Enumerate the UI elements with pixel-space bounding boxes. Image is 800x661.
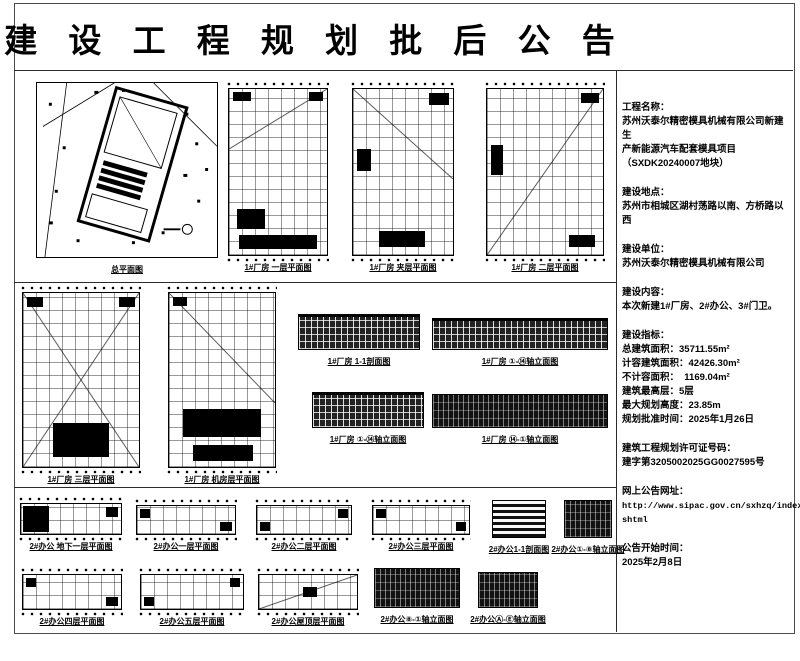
announcement-url-cont: shtml <box>622 513 790 527</box>
announcement-poster: { "title": "建 设 工 程 规 划 批 后 公 告", "color… <box>0 0 800 643</box>
elevation-graphic <box>374 568 460 608</box>
drawing-f1-mezzanine-plan: 1#厂房 夹层平面图 <box>352 88 454 256</box>
plan-core-block <box>23 506 49 532</box>
elevation-graphic <box>564 500 612 538</box>
floor-plan-graphic <box>228 88 328 256</box>
section-line: （SXDK20240007地块） <box>622 157 790 171</box>
floor-plan-graphic <box>486 88 604 256</box>
drawing-label: 2#办公①-⑧轴立面图 <box>551 544 624 555</box>
drawing-label: 总平面图 <box>111 264 143 275</box>
section-heading: 建筑工程规划许可证号码： <box>622 442 790 456</box>
plan-diagonal <box>487 89 603 255</box>
info-section-location: 建设地点： 苏州市相城区湖村荡路以南、方桥路以西 <box>622 186 790 228</box>
drawing-f1-machine-room-plan: 1#厂房 机房层平面图 <box>168 292 276 468</box>
site-plan-graphic <box>36 82 218 258</box>
info-section-project-name: 工程名称： 苏州沃泰尔精密模具机械有限公司新建生 产新能源汽车配套模具项目 （S… <box>622 101 790 171</box>
drawing-f1-elevation-b: 1#厂房 ①-⑭轴立面图 <box>312 392 424 428</box>
indicator-plot-ratio-area: 计容建筑面积：42426.30m² <box>622 357 790 371</box>
info-section-indicators: 建设指标： 总建筑面积：35711.55m² 计容建筑面积：42426.30m²… <box>622 329 790 427</box>
drawing-label: 1#厂房 机房层平面图 <box>184 474 259 485</box>
elevation-graphic <box>478 572 538 608</box>
plan-core-block <box>491 145 503 175</box>
plan-core-block <box>303 587 317 597</box>
indicator-excluded-area: 不计容面积： 1169.04m² <box>622 371 790 385</box>
drawing-label: 2#办公一层平面图 <box>154 541 219 552</box>
drawing-office-fourth-floor-plan: 2#办公四层平面图 <box>22 574 122 610</box>
floor-plan-graphic <box>352 88 454 256</box>
plan-core-block <box>429 93 449 105</box>
drawing-office-section-1-1: 2#办公1-1剖面图 <box>492 500 546 538</box>
drawing-label: 2#办公三层平面图 <box>389 541 454 552</box>
plan-core-block <box>173 297 187 306</box>
floor-plan-graphic <box>256 505 352 535</box>
plan-core-block <box>239 235 317 249</box>
drawing-label: 2#办公四层平面图 <box>40 616 105 627</box>
section-heading: 建设指标： <box>622 329 790 343</box>
drawing-label: 1#厂房 三层平面图 <box>47 474 114 485</box>
announcement-url: http://www.sipac.gov.cn/sxhzq/index. <box>622 499 790 513</box>
plan-core-block <box>569 235 595 247</box>
drawing-office-second-floor-plan: 2#办公二层平面图 <box>256 505 352 535</box>
drawing-label: 2#办公Ⓐ-Ⓔ轴立面图 <box>470 614 546 625</box>
site-plan-drawing <box>37 83 217 257</box>
plan-core-block <box>260 522 270 531</box>
indicator-total-area: 总建筑面积：35711.55m² <box>622 343 790 357</box>
section-line: 苏州沃泰尔精密模具机械有限公司新建生 <box>622 115 790 143</box>
plan-core-block <box>237 209 265 229</box>
drawing-label: 1#厂房 1-1剖面图 <box>328 356 391 367</box>
drawing-office-roof-plan: 2#办公屋顶层平面图 <box>258 574 358 610</box>
floor-plan-graphic <box>136 505 236 535</box>
plan-core-block <box>357 149 371 171</box>
plan-core-block <box>376 509 386 518</box>
drawing-office-basement-plan: 2#办公 地下一层平面图 <box>20 503 122 535</box>
info-section-permit: 建筑工程规划许可证号码： 建字第3205002025GG0027595号 <box>622 442 790 470</box>
plan-core-block <box>193 445 253 461</box>
section-line: 产新能源汽车配套模具项目 <box>622 143 790 157</box>
row-divider-2 <box>14 487 616 488</box>
plan-core-block <box>338 509 348 518</box>
drawing-office-third-floor-plan: 2#办公三层平面图 <box>372 505 470 535</box>
plan-core-block <box>27 297 43 307</box>
plan-core-block <box>581 93 599 103</box>
plan-core-block <box>220 522 232 531</box>
drawing-f1-second-floor-plan: 1#厂房 二层平面图 <box>486 88 604 256</box>
plan-core-block <box>144 597 154 606</box>
section-graphic <box>298 314 420 350</box>
section-heading: 建设单位： <box>622 243 790 257</box>
drawing-office-elevation-c: 2#办公Ⓐ-Ⓔ轴立面图 <box>478 572 538 608</box>
floor-plan-graphic <box>168 292 276 468</box>
drawing-f1-third-floor-plan: 1#厂房 三层平面图 <box>22 292 140 468</box>
plan-core-block <box>379 231 425 247</box>
drawing-f1-elevation-c: 1#厂房 ⑭-①轴立面图 <box>432 394 608 428</box>
drawing-label: 2#办公五层平面图 <box>160 616 225 627</box>
section-heading: 公告开始时间： <box>622 542 790 556</box>
plan-core-block <box>106 597 118 606</box>
drawing-label: 2#办公二层平面图 <box>272 541 337 552</box>
plan-core-block <box>183 409 261 437</box>
page-title: 建 设 工 程 规 划 批 后 公 告 <box>4 14 626 62</box>
elevation-graphic <box>432 318 608 350</box>
plan-core-block <box>230 578 240 587</box>
drawing-f1-section-1-1: 1#厂房 1-1剖面图 <box>298 314 420 350</box>
announcement-start-date: 2025年2月8日 <box>622 556 790 570</box>
permit-number: 建字第3205002025GG0027595号 <box>622 456 790 470</box>
drawing-label: 1#厂房 ⑭-①轴立面图 <box>482 434 559 445</box>
floor-plan-graphic <box>372 505 470 535</box>
drawing-office-first-floor-plan: 2#办公一层平面图 <box>136 505 236 535</box>
elevation-graphic <box>312 392 424 428</box>
section-line: 苏州沃泰尔精密模具机械有限公司 <box>622 257 790 271</box>
section-line: 本次新建1#厂房、2#办公、3#门卫。 <box>622 300 790 314</box>
drawing-label: 2#办公屋顶层平面图 <box>272 616 345 627</box>
drawing-label: 1#厂房 ①-⑭轴立面图 <box>330 434 407 445</box>
info-panel: 工程名称： 苏州沃泰尔精密模具机械有限公司新建生 产新能源汽车配套模具项目 （S… <box>622 70 790 661</box>
drawing-f1-elevation-a: 1#厂房 ①-⑭轴立面图 <box>432 318 608 350</box>
info-section-content: 建设内容： 本次新建1#厂房、2#办公、3#门卫。 <box>622 286 790 314</box>
drawing-office-elevation-b: 2#办公⑧-①轴立面图 <box>374 568 460 608</box>
section-graphic <box>492 500 546 538</box>
drawing-label: 1#厂房 ①-⑭轴立面图 <box>482 356 559 367</box>
title-band: 建 设 工 程 规 划 批 后 公 告 <box>14 6 616 70</box>
floor-plan-graphic <box>22 292 140 468</box>
drawing-label: 1#厂房 二层平面图 <box>511 262 578 273</box>
drawing-label: 1#厂房 一层平面图 <box>244 262 311 273</box>
section-heading: 网上公告网址： <box>622 485 790 499</box>
drawing-f1-first-floor-plan: 1#厂房 一层平面图 <box>228 88 328 256</box>
plan-core-block <box>26 578 36 587</box>
info-section-builder: 建设单位： 苏州沃泰尔精密模具机械有限公司 <box>622 243 790 271</box>
section-line: 苏州市相城区湖村荡路以南、方桥路以西 <box>622 200 790 228</box>
plan-core-block <box>53 423 109 457</box>
floor-plan-graphic <box>258 574 358 610</box>
plan-core-block <box>106 507 118 517</box>
drawing-office-fifth-floor-plan: 2#办公五层平面图 <box>140 574 244 610</box>
drawing-office-elevation-a: 2#办公①-⑧轴立面图 <box>564 500 612 538</box>
indicator-max-floors: 建筑最高层：5层 <box>622 385 790 399</box>
elevation-graphic <box>432 394 608 428</box>
drawing-label: 2#办公 地下一层平面图 <box>29 541 112 552</box>
drawing-site-plan: 总平面图 <box>36 82 218 258</box>
floor-plan-graphic <box>20 503 122 535</box>
floor-plan-graphic <box>22 574 122 610</box>
section-heading: 建设地点： <box>622 186 790 200</box>
floor-plan-graphic <box>140 574 244 610</box>
drawing-label: 2#办公1-1剖面图 <box>489 544 549 555</box>
section-heading: 工程名称： <box>622 101 790 115</box>
plan-core-block <box>233 92 251 101</box>
plan-core-block <box>309 92 323 101</box>
indicator-approval-date: 规划批准时间：2025年1月26日 <box>622 413 790 427</box>
section-heading: 建设内容： <box>622 286 790 300</box>
info-section-url: 网上公告网址： http://www.sipac.gov.cn/sxhzq/in… <box>622 485 790 527</box>
row-divider-1 <box>14 282 616 283</box>
plan-core-block <box>119 297 135 307</box>
indicator-max-height: 最大规划高度：23.85m <box>622 399 790 413</box>
info-section-start-date: 公告开始时间： 2025年2月8日 <box>622 542 790 570</box>
drawing-label: 1#厂房 夹层平面图 <box>369 262 436 273</box>
plan-diagonal <box>169 293 275 403</box>
plan-core-block <box>140 509 150 518</box>
plan-core-block <box>456 522 466 531</box>
drawing-label: 2#办公⑧-①轴立面图 <box>380 614 453 625</box>
